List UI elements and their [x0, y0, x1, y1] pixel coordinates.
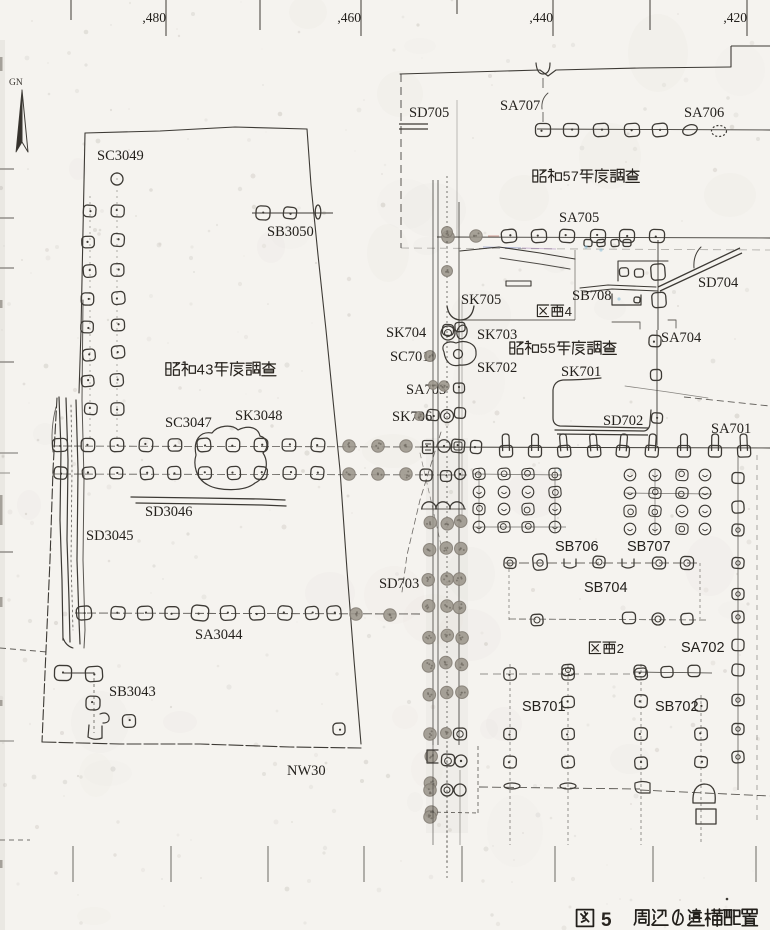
svg-text:SA3044: SA3044: [195, 627, 243, 643]
svg-text:,440: ,440: [529, 10, 553, 25]
svg-text:SC701: SC701: [390, 349, 430, 365]
svg-text:,480: ,480: [142, 10, 166, 25]
svg-text:SA706: SA706: [684, 105, 724, 121]
svg-text:3: 3: [205, 362, 213, 378]
svg-text:5: 5: [601, 910, 612, 930]
svg-text:SD702: SD702: [603, 413, 643, 429]
svg-text:,460: ,460: [337, 10, 361, 25]
svg-text:SB706: SB706: [555, 539, 599, 555]
svg-text:SB3050: SB3050: [267, 224, 314, 240]
svg-text:SB707: SB707: [627, 539, 671, 555]
svg-text:SB702: SB702: [655, 699, 699, 715]
svg-text:SA707: SA707: [500, 98, 540, 114]
svg-text:SA701: SA701: [711, 421, 751, 437]
svg-text:SD3045: SD3045: [86, 528, 134, 544]
svg-text:SA705: SA705: [559, 210, 599, 226]
svg-text:SD3046: SD3046: [145, 504, 193, 520]
svg-text:5: 5: [540, 341, 548, 357]
svg-text:SD705: SD705: [409, 105, 449, 121]
svg-text:SK3048: SK3048: [235, 408, 283, 424]
svg-text:SK701: SK701: [561, 364, 601, 380]
svg-text:4: 4: [197, 362, 205, 378]
svg-text:SB708: SB708: [572, 288, 612, 304]
svg-text:SA702: SA702: [681, 640, 725, 656]
svg-text:GN: GN: [9, 78, 23, 88]
svg-text:NW30: NW30: [287, 763, 326, 779]
svg-text:SK702: SK702: [477, 360, 517, 376]
svg-text:SB3043: SB3043: [109, 684, 156, 700]
svg-text:SK704: SK704: [386, 325, 427, 341]
svg-text:SC3049: SC3049: [97, 148, 144, 164]
svg-text:,420: ,420: [723, 10, 747, 25]
svg-text:2: 2: [617, 641, 624, 656]
svg-text:SB701: SB701: [522, 699, 566, 715]
svg-text:4: 4: [565, 304, 572, 319]
svg-text:SA704: SA704: [661, 330, 702, 346]
svg-text:SD704: SD704: [698, 275, 739, 291]
svg-text:SK705: SK705: [461, 292, 501, 308]
svg-text:SB704: SB704: [584, 580, 628, 596]
svg-text:SK703: SK703: [477, 327, 517, 343]
svg-text:7: 7: [571, 169, 579, 185]
svg-text:5: 5: [548, 341, 556, 357]
svg-text:5: 5: [563, 169, 571, 185]
svg-text:SD703: SD703: [379, 576, 419, 592]
svg-text:SC3047: SC3047: [165, 415, 212, 431]
